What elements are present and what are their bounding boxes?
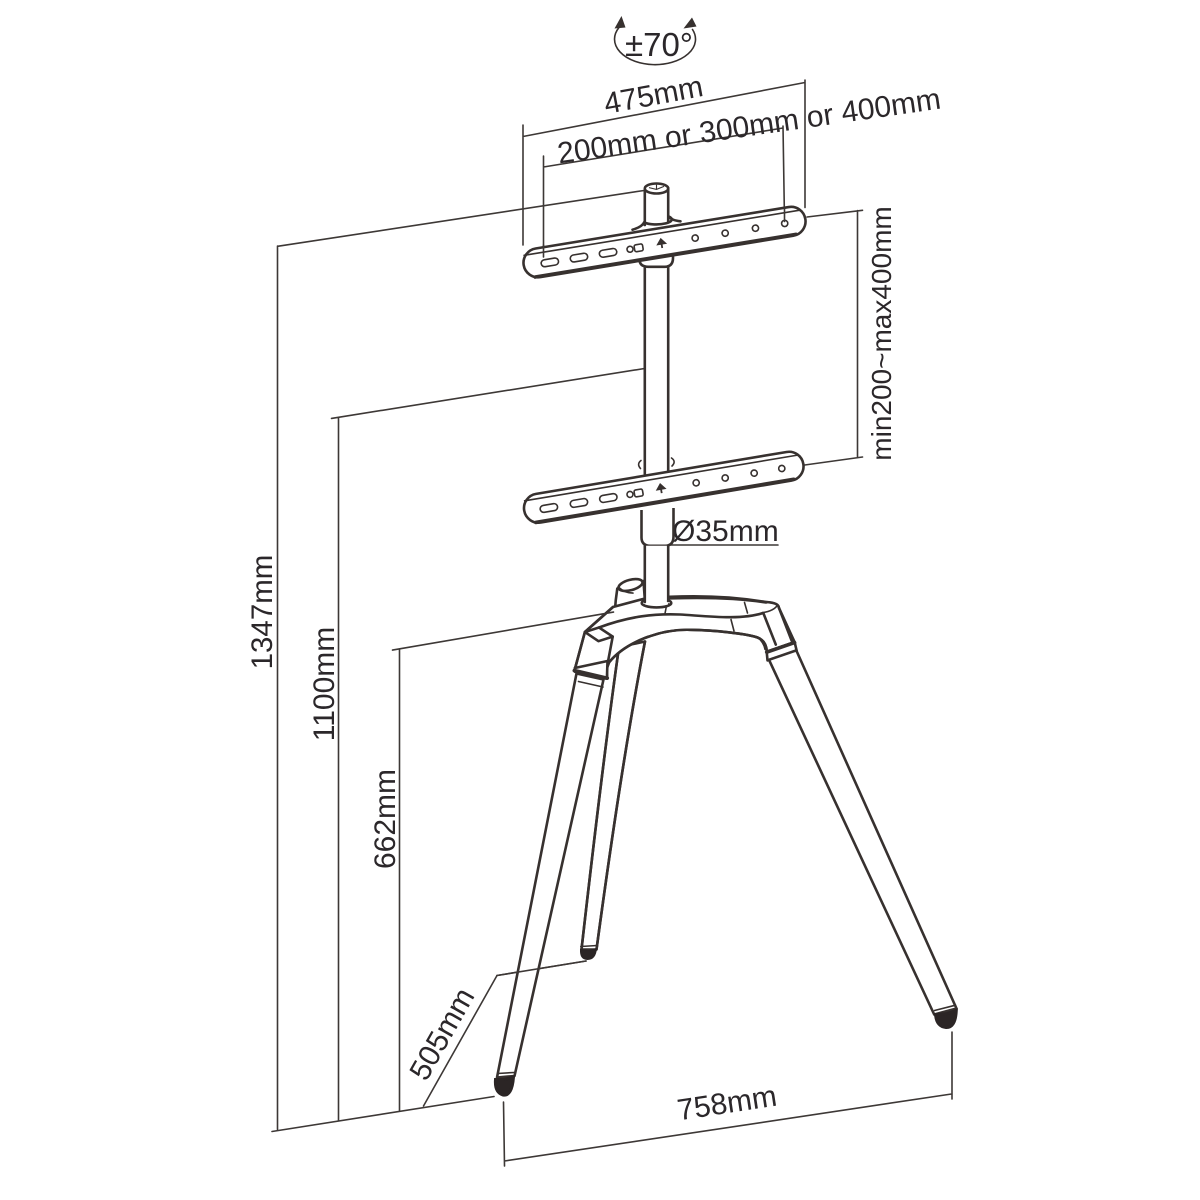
svg-text:1100mm: 1100mm [308, 627, 341, 742]
svg-text:662mm: 662mm [369, 769, 402, 869]
svg-text:Ø35mm: Ø35mm [672, 515, 779, 548]
svg-text:1347mm: 1347mm [246, 555, 279, 670]
svg-text:min200~max400mm: min200~max400mm [866, 206, 897, 460]
svg-text:±70°: ±70° [625, 26, 693, 63]
